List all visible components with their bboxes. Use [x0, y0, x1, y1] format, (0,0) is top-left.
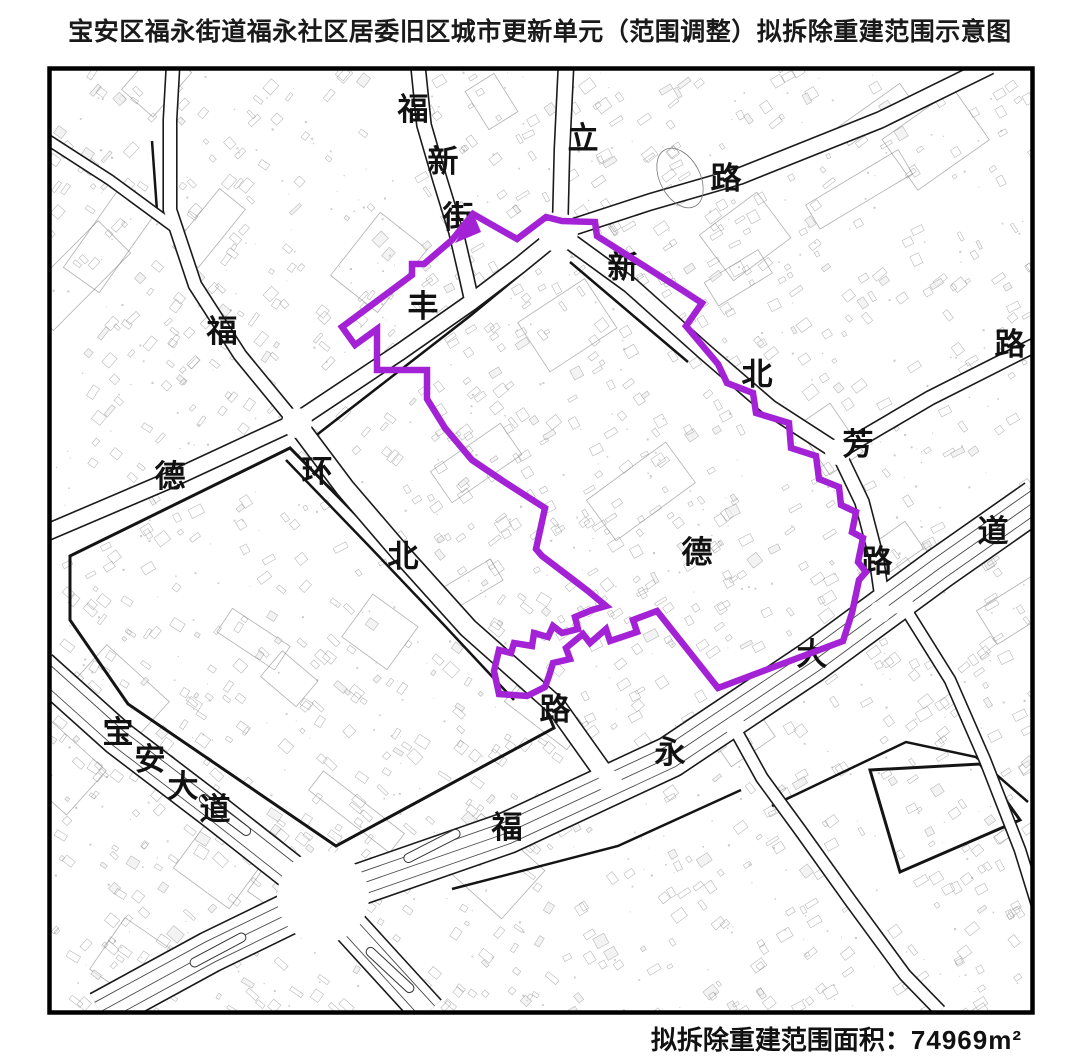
road-label: 路 [540, 692, 572, 728]
page-title: 宝安区福永街道福永社区居委旧区城市更新单元（范围调整）拟拆除重建范围示意图 [0, 12, 1080, 48]
road-label: 丰 [408, 289, 439, 325]
road-label: 福 [491, 810, 523, 846]
map-canvas: 福新街立路新丰福路北芳环德道德北路大路宝永安大道福 [47, 66, 1035, 1015]
road-label: 德 [155, 459, 186, 495]
map-frame: 福新街立路新丰福路北芳环德道德北路大路宝永安大道福 [47, 66, 1035, 1015]
road-label: 立 [568, 121, 599, 157]
road-label: 路 [711, 161, 743, 197]
road-label: 福 [397, 92, 429, 128]
road-label: 福 [206, 314, 238, 350]
road-label: 道 [978, 514, 1009, 550]
road-label: 路 [995, 327, 1027, 363]
road-label: 安 [135, 742, 166, 778]
road-label: 永 [655, 735, 686, 771]
road-label: 宝 [103, 715, 134, 751]
road-label: 芳 [843, 427, 874, 463]
road-label: 德 [682, 535, 713, 571]
area-caption-label: 拟拆除重建范围面积： [651, 1025, 911, 1055]
area-value: 74969 [911, 1025, 988, 1055]
road-label: 大 [168, 769, 199, 805]
road-label: 环 [302, 454, 333, 490]
road-label: 北 [388, 539, 419, 575]
road-label: 道 [200, 792, 231, 828]
area-unit: m² [988, 1025, 1022, 1055]
road-label: 新 [428, 144, 459, 180]
area-caption: 拟拆除重建范围面积：74969m² [651, 1020, 1022, 1057]
